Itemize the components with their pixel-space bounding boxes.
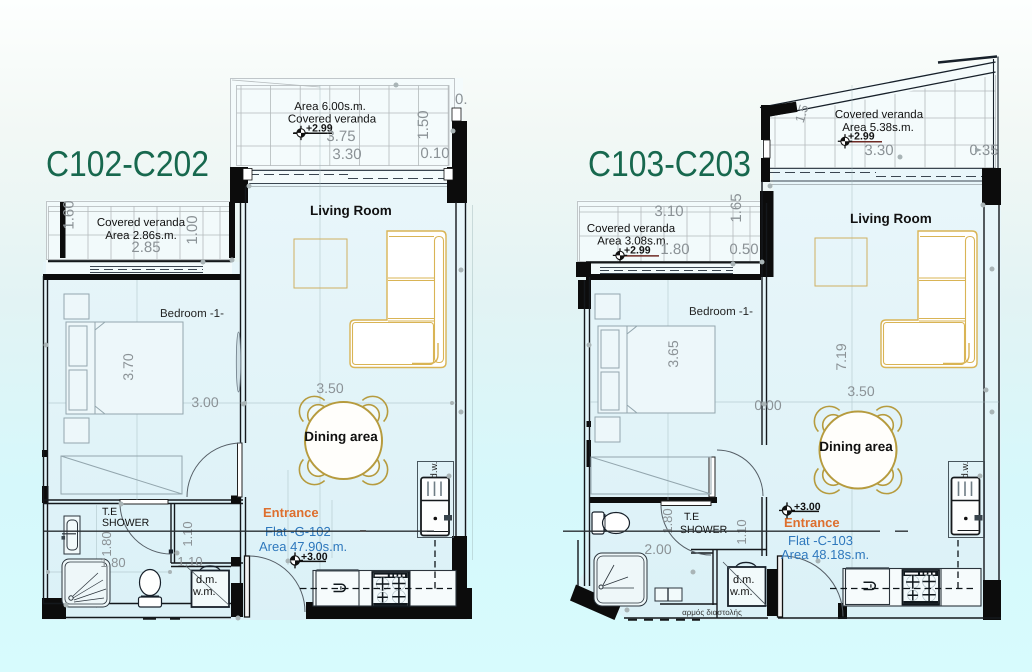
svg-text:Area 6.00s.m.: Area 6.00s.m. <box>294 101 366 113</box>
svg-text:1.80: 1.80 <box>660 508 675 533</box>
svg-text:0.35: 0.35 <box>969 142 998 159</box>
svg-text:d.w.: d.w. <box>429 462 440 479</box>
svg-text:3.00: 3.00 <box>191 394 218 410</box>
svg-text:3.50: 3.50 <box>847 383 874 399</box>
svg-text:d.m.: d.m. <box>196 574 217 586</box>
svg-text:SHOWER: SHOWER <box>102 517 150 529</box>
svg-text:1.65: 1.65 <box>728 193 745 222</box>
svg-text:1.50: 1.50 <box>415 110 432 139</box>
svg-text:w.m.: w.m. <box>729 586 753 598</box>
svg-text:Living Room: Living Room <box>310 203 392 218</box>
svg-text:1.10: 1.10 <box>177 554 202 569</box>
svg-text:1.10: 1.10 <box>180 521 195 546</box>
svg-text:+2.99: +2.99 <box>624 245 651 257</box>
svg-text:SHOWER: SHOWER <box>680 524 728 536</box>
svg-text:3.10: 3.10 <box>654 203 683 220</box>
svg-text:Entrance: Entrance <box>263 505 319 520</box>
svg-text:αρμός διαστολής: αρμός διαστολής <box>682 608 742 617</box>
svg-text:1.80: 1.80 <box>100 555 125 570</box>
svg-text:1.00: 1.00 <box>184 215 201 244</box>
svg-text:Entrance: Entrance <box>784 515 840 530</box>
svg-text:T.E: T.E <box>684 511 699 523</box>
svg-text:2.00: 2.00 <box>644 541 671 557</box>
svg-text:Flat -C-103: Flat -C-103 <box>788 533 853 548</box>
svg-text:Bedroom -1-: Bedroom -1- <box>160 308 224 320</box>
svg-text:Covered veranda: Covered veranda <box>835 109 924 121</box>
svg-text:7.19: 7.19 <box>833 343 849 370</box>
svg-text:Living Room: Living Room <box>850 211 932 226</box>
svg-text:d.w.: d.w. <box>960 462 971 479</box>
svg-text:3.50: 3.50 <box>316 380 343 396</box>
svg-text:1.60: 1.60 <box>61 200 78 229</box>
svg-text:0.: 0. <box>455 91 468 108</box>
svg-text:C103-C203: C103-C203 <box>588 143 751 184</box>
svg-text:3.70: 3.70 <box>120 353 136 380</box>
svg-text:1.80: 1.80 <box>99 531 114 556</box>
svg-text:3.30: 3.30 <box>332 146 361 163</box>
svg-text:C102-C202: C102-C202 <box>46 143 209 184</box>
svg-text:2.85: 2.85 <box>131 239 160 256</box>
svg-text:w.m.: w.m. <box>192 586 216 598</box>
svg-text:Dining area: Dining area <box>819 439 893 454</box>
svg-text:d.m.: d.m. <box>733 574 754 586</box>
svg-text:3.30: 3.30 <box>864 142 893 159</box>
svg-text:0.00: 0.00 <box>754 397 781 413</box>
svg-text:3.75: 3.75 <box>326 128 355 145</box>
svg-text:Area 48.18s.m.: Area 48.18s.m. <box>781 547 869 562</box>
svg-text:1.80: 1.80 <box>660 241 689 258</box>
svg-text:1.10: 1.10 <box>734 519 749 544</box>
svg-text:0.10: 0.10 <box>420 145 449 162</box>
svg-text:Covered veranda: Covered veranda <box>97 217 186 229</box>
svg-text:Bedroom -1-: Bedroom -1- <box>689 306 753 318</box>
svg-text:3.65: 3.65 <box>665 340 681 367</box>
svg-text:0.50: 0.50 <box>729 241 758 258</box>
svg-text:Covered veranda: Covered veranda <box>587 223 676 235</box>
svg-text:Dining area: Dining area <box>304 429 378 444</box>
